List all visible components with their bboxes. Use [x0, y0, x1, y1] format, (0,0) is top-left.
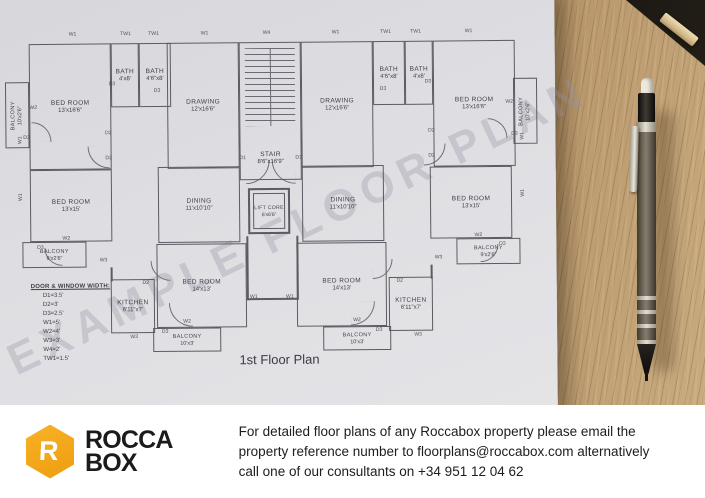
dim-label-w1: W1 [201, 31, 209, 36]
pencil-grip-ring [637, 340, 656, 344]
dim-label-tw1: TW1 [120, 32, 131, 37]
plan-title: 1st Floor Plan [239, 352, 319, 368]
pencil-tip [637, 344, 656, 374]
floorplan-paper: EXAMPLE FLOOR PLAN [0, 0, 558, 405]
dim-label-w2: W2 [474, 233, 482, 238]
room-dining: DINING11'x10'10" [302, 165, 385, 242]
logo-r-mark: R [38, 436, 59, 467]
mechanical-pencil [628, 76, 658, 386]
legend-item: TW1=1.5' [31, 354, 123, 364]
dim-label-w1: W1 [520, 189, 525, 197]
dim-label-d3: D3 [499, 241, 506, 246]
dim-label-d3: D3 [109, 82, 116, 87]
room-lift-core: LIFT CORE6'x6'6" [248, 188, 290, 234]
room-bath: BATH4'6"x8' [373, 41, 406, 105]
roccabox-logo: R ROCCA BOX [26, 425, 173, 479]
dim-label-w1: W1 [286, 294, 294, 299]
pencil-grip-ring [637, 310, 656, 314]
logo-text-box: BOX [85, 452, 173, 475]
dim-label-w3: W3 [130, 335, 138, 340]
legend-title: DOOR & WINDOW WIDTH: [31, 283, 123, 290]
photo-area: EXAMPLE FLOOR PLAN [0, 0, 705, 405]
dim-label-w1: W1 [18, 193, 23, 201]
floor-plan: EXAMPLE FLOOR PLAN [0, 0, 558, 405]
dim-label-d3: D3 [23, 136, 30, 141]
room-kitchen: KITCHEN6'11"x7' [389, 277, 433, 331]
room-balcony: BALCONY9'x2'6" [456, 238, 520, 265]
logo-hexagon-icon: R [26, 425, 74, 479]
room-stair: STAIR8'6"x16'9" [239, 42, 302, 181]
room-bed-room: BED ROOM13'x15' [430, 166, 513, 239]
dim-label-w2: W2 [353, 318, 361, 323]
dim-label-w1: W1 [332, 30, 340, 35]
pencil-lead [645, 372, 648, 381]
dim-label-w3: W3 [435, 255, 443, 260]
room-balcony: BALCONY9'x2'6" [22, 242, 86, 269]
dim-label-d2: D2 [396, 278, 403, 283]
dim-label-d2: D2 [428, 128, 435, 133]
dim-label-d3: D3 [162, 329, 169, 334]
room-drawing: DRAWING12'x16'6" [301, 41, 374, 168]
dim-label-w1: W1 [18, 136, 23, 144]
room-drawing: DRAWING12'x16'6" [167, 42, 240, 169]
dim-label-tw1: TW1 [148, 31, 159, 36]
footer-message: For detailed floor plans of any Roccabox… [239, 422, 650, 482]
dim-label-w1: W1 [69, 32, 77, 37]
room-bed-room: BED ROOM14'x13' [156, 243, 247, 328]
dim-label-w1: W1 [465, 29, 473, 34]
dim-label-d2: D2 [105, 131, 112, 136]
pencil-collar [638, 93, 655, 123]
footer-message-line: property reference number to floorplans@… [239, 442, 650, 462]
dim-label-w2: W2 [183, 319, 191, 324]
legend-items: D1=3.5'D2=3'D3=2.5'W1=5'W2=4'W3=3'W4=2'T… [31, 291, 124, 364]
pencil-grip-ring [637, 296, 656, 300]
dim-label-w2: W2 [505, 99, 513, 104]
dim-label-d3: D3 [37, 245, 44, 250]
room-bed-room: BED ROOM13'x16'6" [29, 43, 112, 170]
logo-wordmark: ROCCA BOX [85, 429, 173, 475]
footer-banner: R ROCCA BOX For detailed floor plans of … [0, 405, 705, 498]
dim-label-d2: D2 [428, 153, 435, 158]
pencil-grip-ring [637, 324, 656, 328]
dim-label-d3: D3 [425, 79, 432, 84]
room-kitchen: KITCHEN6'11"x7' [111, 279, 155, 333]
room-bath: BATH4'x8' [111, 43, 140, 107]
dim-label-w3: W3 [414, 332, 422, 337]
dim-label-w1: W1 [250, 295, 258, 300]
dim-label-tw1: TW1 [410, 29, 421, 34]
dim-label-w3: W3 [100, 258, 108, 263]
door-window-legend: DOOR & WINDOW WIDTH: D1=3.5'D2=3'D3=2.5'… [31, 283, 124, 364]
screenshot-root: EXAMPLE FLOOR PLAN [0, 0, 705, 498]
room-dining: DINING11'x10'10" [158, 166, 241, 243]
dim-label-w1: W1 [520, 132, 525, 140]
dim-label-d3: D3 [376, 327, 383, 332]
dim-label-tw1: TW1 [380, 29, 391, 34]
dim-label-d2: D2 [105, 156, 112, 161]
room-bed-room: BED ROOM13'x16'6" [433, 40, 516, 167]
footer-message-line: call one of our consultants on +34 951 1… [239, 462, 650, 482]
dim-label-w2: W2 [62, 236, 70, 241]
dim-label-w4: W4 [263, 30, 271, 35]
dim-label-d3: D3 [511, 131, 518, 136]
dim-label-d2: D2 [142, 281, 149, 286]
dim-label-d1: D1 [239, 156, 246, 161]
pencil-clip [629, 126, 639, 192]
room-bath: BATH4'x8' [405, 41, 434, 105]
room-bed-room: BED ROOM13'x15' [30, 169, 113, 242]
dim-label-w2: W2 [29, 105, 37, 110]
footer-message-line: For detailed floor plans of any Roccabox… [239, 422, 650, 442]
room-bed-room: BED ROOM14'x13' [296, 242, 387, 327]
dim-label-d3: D3 [154, 88, 161, 93]
dim-label-d1: D1 [295, 155, 302, 160]
dim-label-d3: D3 [380, 86, 387, 91]
